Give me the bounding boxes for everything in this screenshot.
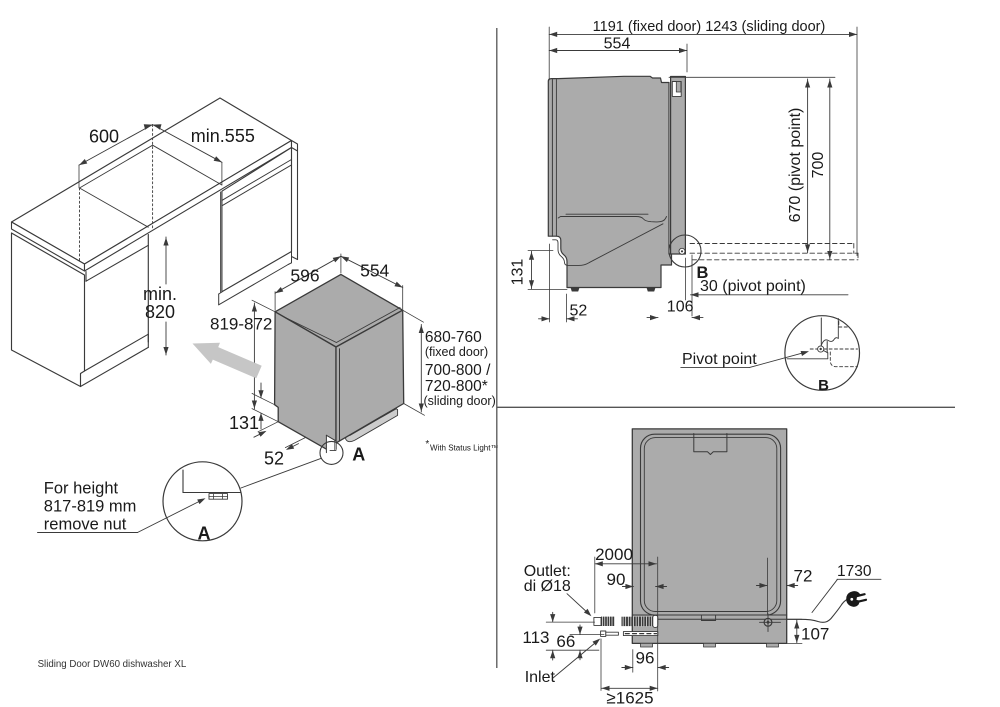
svg-text:≥1625: ≥1625 bbox=[606, 689, 653, 707]
svg-text:820: 820 bbox=[145, 302, 175, 322]
svg-text:2000: 2000 bbox=[595, 545, 633, 564]
svg-text:817-819 mm: 817-819 mm bbox=[44, 498, 137, 516]
svg-text:Pivot point: Pivot point bbox=[682, 351, 757, 368]
svg-text:720-800*: 720-800* bbox=[425, 378, 488, 395]
svg-text:107: 107 bbox=[801, 625, 829, 644]
svg-text:A: A bbox=[198, 524, 211, 544]
svg-text:remove nut: remove nut bbox=[44, 516, 127, 534]
svg-text:(sliding door): (sliding door) bbox=[424, 394, 496, 408]
svg-text:With Status Light™: With Status Light™ bbox=[430, 444, 498, 453]
svg-text:96: 96 bbox=[636, 649, 655, 668]
svg-text:700-800 /: 700-800 / bbox=[425, 362, 491, 379]
svg-text:1191 (fixed door) 1243 (slidin: 1191 (fixed door) 1243 (sliding door) bbox=[593, 19, 826, 35]
svg-text:554: 554 bbox=[360, 260, 389, 280]
svg-text:52: 52 bbox=[570, 303, 588, 320]
svg-text:B: B bbox=[818, 377, 829, 394]
svg-text:min.: min. bbox=[143, 284, 177, 304]
svg-text:min.555: min.555 bbox=[191, 126, 255, 146]
svg-text:66: 66 bbox=[556, 632, 575, 651]
svg-text:819-872: 819-872 bbox=[210, 315, 272, 334]
svg-text:700: 700 bbox=[810, 152, 827, 179]
svg-text:106: 106 bbox=[667, 299, 694, 316]
svg-text:Inlet: Inlet bbox=[525, 669, 556, 686]
svg-text:52: 52 bbox=[264, 449, 284, 469]
svg-text:554: 554 bbox=[604, 36, 631, 53]
svg-text:72: 72 bbox=[794, 567, 813, 586]
svg-text:A: A bbox=[352, 445, 365, 465]
svg-text:596: 596 bbox=[290, 266, 319, 286]
svg-text:670 (pivot point): 670 (pivot point) bbox=[787, 108, 804, 223]
svg-text:131: 131 bbox=[229, 413, 259, 433]
svg-text:113: 113 bbox=[522, 628, 549, 647]
svg-text:di Ø18: di Ø18 bbox=[524, 578, 571, 595]
svg-text:680-760: 680-760 bbox=[425, 329, 482, 346]
svg-text:131: 131 bbox=[510, 259, 527, 286]
svg-text:30 (pivot point): 30 (pivot point) bbox=[700, 278, 806, 295]
svg-text:(fixed door): (fixed door) bbox=[425, 345, 488, 359]
svg-text:Sliding Door DW60 dishwasher X: Sliding Door DW60 dishwasher XL bbox=[38, 659, 187, 670]
svg-text:For height: For height bbox=[44, 480, 119, 498]
svg-text:*: * bbox=[425, 439, 429, 450]
svg-text:1730: 1730 bbox=[837, 563, 872, 580]
svg-text:600: 600 bbox=[89, 127, 119, 147]
